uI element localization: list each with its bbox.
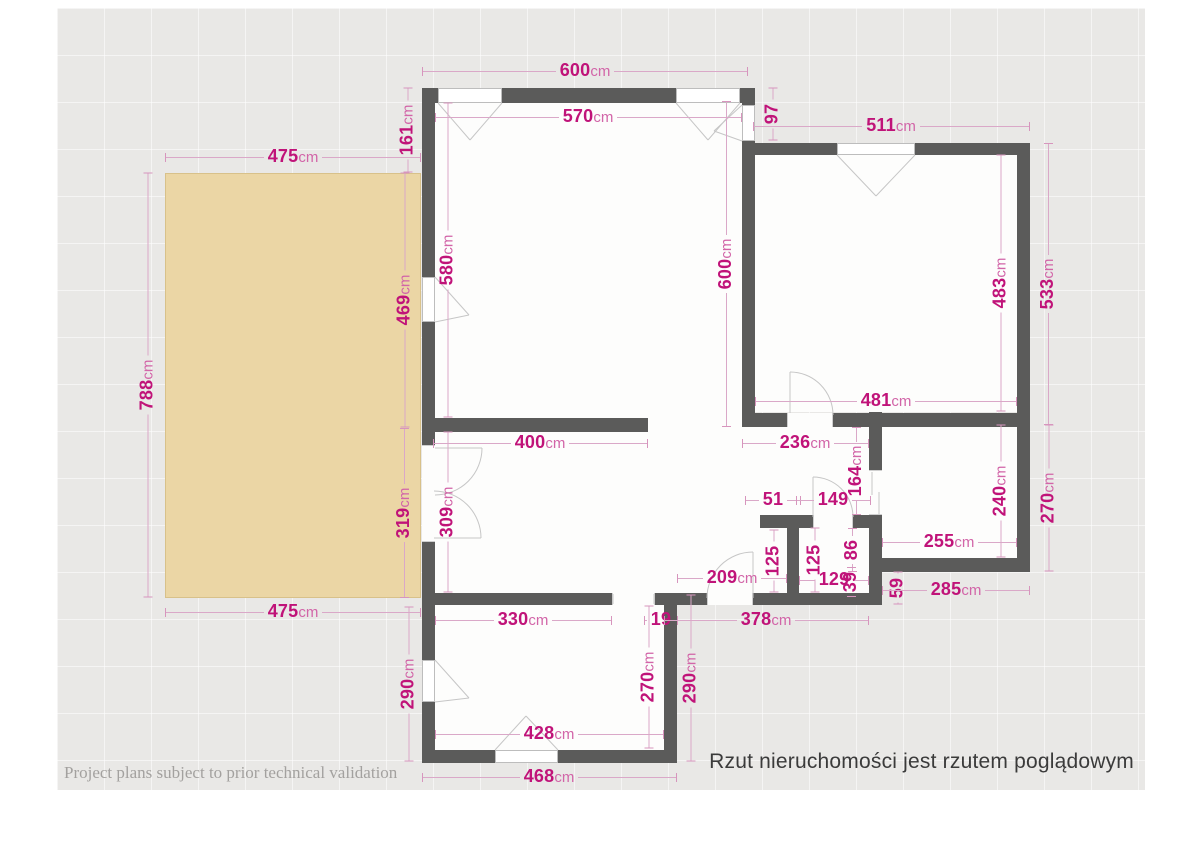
- wall-segment: [664, 593, 677, 763]
- room-floor: [435, 605, 664, 750]
- window-living-north-2: [676, 88, 740, 103]
- door-terrace-french-gap: [422, 445, 435, 542]
- window-bottomroom-west: [422, 660, 435, 702]
- wall-segment: [853, 515, 869, 528]
- floor-plan: Project plans subject to prior technical…: [0, 0, 1200, 849]
- closet-sliding: [869, 470, 882, 515]
- door-bedroom: [787, 413, 833, 427]
- wall-segment: [1017, 143, 1030, 572]
- terrace-area: [165, 173, 421, 598]
- wall-segment: [655, 593, 869, 605]
- window-living-north-1: [438, 88, 502, 103]
- room-floor: [435, 427, 869, 593]
- room-floor: [435, 103, 742, 418]
- wall-segment: [787, 515, 799, 605]
- door-wc: [813, 515, 853, 528]
- window-bedroom-north: [837, 143, 915, 155]
- wall-segment: [422, 418, 648, 432]
- validation-note: Project plans subject to prior technical…: [64, 763, 397, 783]
- wall-segment: [422, 593, 612, 605]
- window-living-west: [422, 277, 435, 322]
- opening-bottom-room: [612, 593, 655, 605]
- room-floor: [755, 155, 1017, 412]
- window-living-east: [742, 105, 755, 141]
- door-entrance: [707, 593, 753, 605]
- room-floor: [882, 425, 1017, 558]
- disclaimer-note: Rzut nieruchomości jest rzutem poglądowy…: [709, 750, 1134, 774]
- wall-segment: [869, 558, 1030, 572]
- window-bottomroom-south: [495, 750, 558, 763]
